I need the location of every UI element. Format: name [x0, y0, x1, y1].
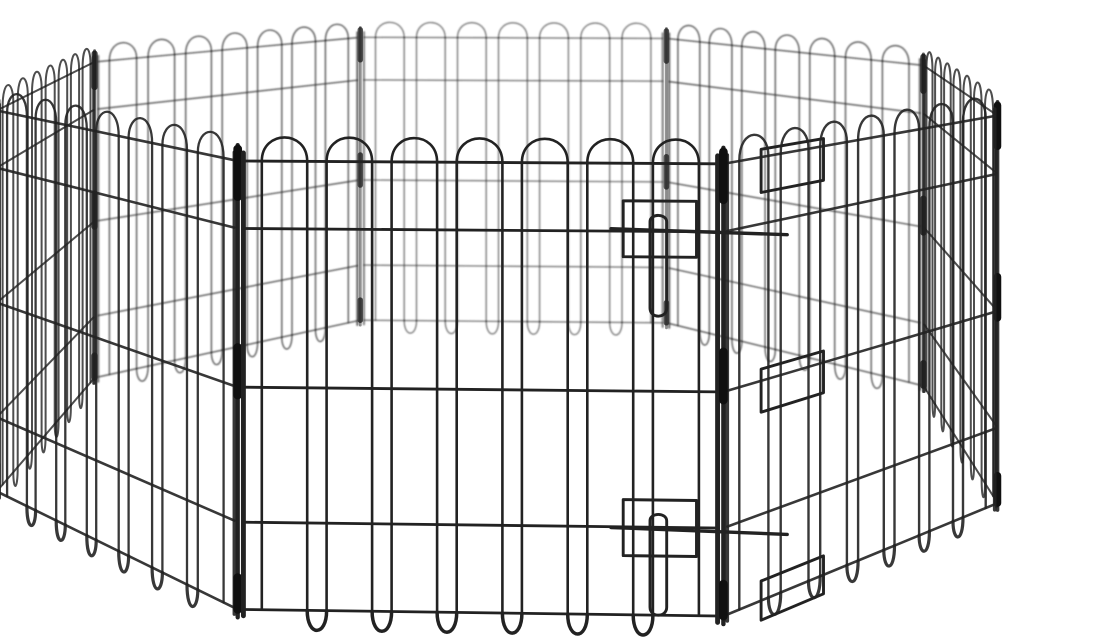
- panel-back-left-bottom-loops: [137, 328, 326, 381]
- panel-front-right-top-loops: [739, 99, 985, 161]
- product-photo-page: [0, 0, 1100, 642]
- panel-back-right: [669, 25, 920, 389]
- panel-back-right-top-loops: [678, 25, 909, 63]
- panel-front-left: [0, 94, 234, 614]
- panel-back-rails: [364, 37, 663, 323]
- panel-back-top-loops: [376, 22, 651, 38]
- product-photo-figure: [0, 0, 1100, 642]
- panel-front-door-top-loops: [262, 137, 699, 163]
- panel-front-left-top-loops: [7, 94, 224, 158]
- panel-back: [364, 22, 663, 335]
- panel-left: [0, 49, 94, 495]
- joint-clip-1: [761, 351, 823, 412]
- panel-back-right-vertical-wires: [678, 40, 909, 383]
- panel-front-door: [243, 137, 717, 635]
- panel-front-left-bottom-loops: [27, 506, 198, 606]
- wire-playpen-illustration: [0, 0, 1100, 642]
- panel-front-right: [727, 99, 994, 621]
